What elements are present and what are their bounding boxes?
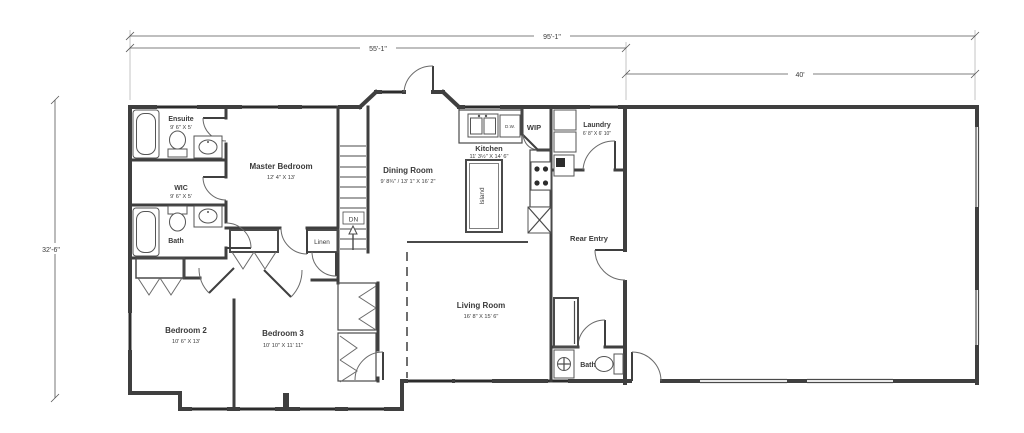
label-dining-room: Dining Room xyxy=(383,166,433,175)
stove xyxy=(531,162,551,190)
label-wip: WIP xyxy=(527,123,541,132)
bedroom3-closet1-bifold xyxy=(359,286,376,330)
laundry-door xyxy=(583,141,615,170)
dims-ensuite: 9' 6" X 5' xyxy=(170,125,192,131)
dims-living-room: 16' 8" X 15' 6" xyxy=(464,314,499,320)
floor-plan-drawing: 95'-1" 55'-1" 40' 32'-6" xyxy=(0,0,1024,433)
label-kitchen: Kitchen xyxy=(475,144,503,153)
label-wic: WIC xyxy=(174,185,188,192)
bedroom3-rear-door xyxy=(355,352,383,380)
label-ensuite: Ensuite xyxy=(168,116,193,123)
staircase: DN xyxy=(340,146,366,250)
label-linen: Linen xyxy=(314,239,330,246)
linen-door xyxy=(312,252,336,276)
bedroom3-door xyxy=(264,270,302,297)
bath-toilet xyxy=(168,206,187,231)
dim-overall-depth: 32'-6" xyxy=(42,247,60,254)
dims-master-bedroom: 12' 4" X 13' xyxy=(267,175,295,181)
label-laundry: Laundry xyxy=(583,122,611,129)
ensuite-bathtub xyxy=(133,110,159,158)
dim-overall-width: 95'-1" xyxy=(543,34,561,41)
hall-closet-bifold xyxy=(232,252,276,269)
master-bedroom-door xyxy=(281,228,307,254)
dishwasher-label: D.W. xyxy=(505,124,515,129)
room-labels: Ensuite 9' 6" X 5' WIC 9' 6" X 5' Bath M… xyxy=(165,116,611,369)
half-bath-door xyxy=(578,320,605,347)
label-bedroom-2: Bedroom 2 xyxy=(165,326,207,335)
bedroom2-closet-bifold xyxy=(138,278,182,295)
rear-entry-closet xyxy=(554,298,578,347)
ensuite-toilet xyxy=(168,131,187,157)
label-bath: Bath xyxy=(168,238,184,245)
dims-dining-room: 9' 8¾" / 13' 1" X 16' 2" xyxy=(381,179,436,185)
label-rear-entry: Rear Entry xyxy=(570,234,609,243)
garage-door-left xyxy=(700,377,787,385)
kitchen-sink xyxy=(468,114,498,137)
bay-post xyxy=(283,393,289,409)
label-island: Island xyxy=(479,187,486,204)
bedroom2-closet xyxy=(136,258,184,278)
laundry-sink xyxy=(554,155,574,176)
wip-pantry-door xyxy=(523,135,538,150)
kitchen-pantry-cabinet xyxy=(528,207,551,233)
half-bath-sink xyxy=(554,350,574,378)
bath-sink xyxy=(194,206,222,227)
label-bedroom-3: Bedroom 3 xyxy=(262,329,304,338)
dims-bedroom-2: 10' 6" X 13' xyxy=(172,339,200,345)
dryer xyxy=(554,132,576,152)
dims-bedroom-3: 10' 10" X 11' 11" xyxy=(263,343,303,349)
label-living-room: Living Room xyxy=(457,301,505,310)
half-bath-toilet xyxy=(595,354,623,374)
floor-plan-page: 95'-1" 55'-1" 40' 32'-6" xyxy=(0,0,1024,433)
stairs-dn-label: DN xyxy=(349,217,359,224)
bedroom2-door xyxy=(199,268,234,293)
front-entry-door xyxy=(404,66,433,92)
dishwasher: D.W. xyxy=(500,115,520,137)
garage-man-door xyxy=(632,352,661,381)
dim-garage-width: 40' xyxy=(795,72,804,79)
stairs-direction-arrow xyxy=(349,226,357,234)
garage-entry-door xyxy=(595,250,625,280)
bedroom3-closet2-bifold xyxy=(340,336,357,382)
ensuite-sink xyxy=(194,136,222,158)
label-master-bedroom: Master Bedroom xyxy=(249,162,312,171)
bath-bathtub xyxy=(133,208,159,256)
label-half-bath: Bath xyxy=(580,362,596,369)
washer xyxy=(554,110,576,130)
dims-wic: 9' 6" X 5' xyxy=(170,194,192,200)
dims-kitchen: 11' 3½" X 14' 6" xyxy=(470,153,509,160)
dim-main-house-width: 55'-1" xyxy=(369,46,387,53)
dims-laundry: 6' 8" X 6' 10" xyxy=(583,131,611,137)
wic-door xyxy=(203,177,226,200)
garage-door-right xyxy=(807,377,893,385)
